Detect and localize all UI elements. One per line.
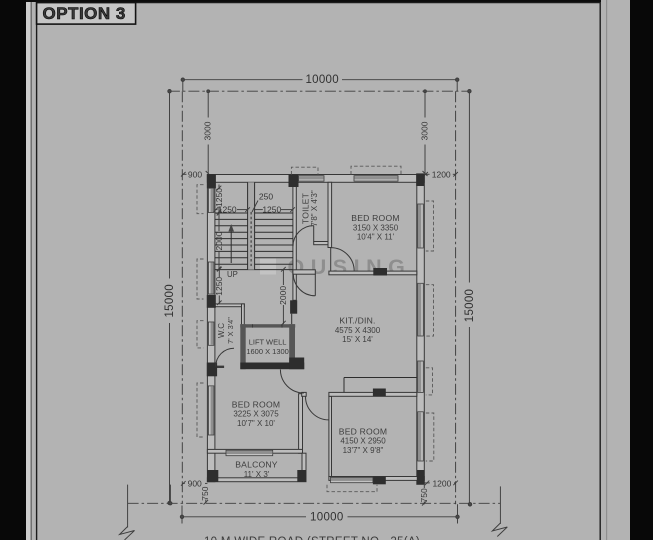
svg-text:TOILET: TOILET — [301, 192, 311, 224]
svg-text:BED ROOM: BED ROOM — [351, 213, 399, 223]
svg-text:BALCONY: BALCONY — [235, 460, 278, 470]
svg-text:1250: 1250 — [214, 277, 224, 296]
svg-text:KIT./DIN.: KIT./DIN. — [339, 315, 375, 325]
svg-text:900: 900 — [188, 169, 202, 179]
svg-text:OUSING: OUSING — [288, 255, 412, 279]
svg-text:3000: 3000 — [203, 121, 213, 140]
svg-text:1200: 1200 — [432, 169, 451, 179]
svg-text:2000: 2000 — [214, 231, 224, 250]
svg-text:4150 X 2950: 4150 X 2950 — [340, 437, 386, 446]
svg-text:10'4" X 11': 10'4" X 11' — [357, 233, 395, 242]
svg-text:10000: 10000 — [305, 74, 338, 86]
svg-text:7'8" X 4'3": 7'8" X 4'3" — [310, 190, 319, 226]
svg-text:2000: 2000 — [278, 286, 288, 305]
svg-text:LIFT WELL: LIFT WELL — [249, 338, 287, 347]
svg-text:UP: UP — [227, 270, 238, 279]
svg-text:10 M WIDE ROAD (STREET NO - 25: 10 M WIDE ROAD (STREET NO - 25(A) — [204, 536, 420, 540]
svg-text:3225 X 3075: 3225 X 3075 — [233, 410, 279, 419]
svg-text:4575 X 4300: 4575 X 4300 — [335, 326, 381, 335]
svg-text:3000: 3000 — [419, 121, 429, 140]
svg-text:11' X 3': 11' X 3' — [244, 470, 270, 479]
svg-text:1600 X 1300: 1600 X 1300 — [246, 347, 289, 356]
svg-text:OPTION 3: OPTION 3 — [43, 4, 126, 23]
svg-text:10'7" X 10': 10'7" X 10' — [237, 419, 275, 428]
svg-text:BED ROOM: BED ROOM — [232, 399, 280, 409]
svg-text:15000: 15000 — [464, 289, 476, 322]
svg-text:13'7" X 9'8": 13'7" X 9'8" — [343, 446, 384, 455]
svg-text:1250: 1250 — [262, 204, 281, 214]
svg-text:1200: 1200 — [432, 478, 451, 488]
svg-text:15000: 15000 — [164, 284, 176, 317]
svg-text:750: 750 — [419, 488, 429, 502]
svg-text:3150 X 3350: 3150 X 3350 — [353, 224, 399, 233]
svg-text:250: 250 — [259, 191, 273, 201]
svg-text:W.C: W.C — [217, 323, 226, 338]
svg-text:10000: 10000 — [310, 512, 343, 524]
svg-text:1250: 1250 — [218, 204, 237, 214]
svg-text:750: 750 — [200, 486, 210, 500]
svg-text:BED ROOM: BED ROOM — [339, 426, 387, 436]
svg-text:15' X 14': 15' X 14' — [342, 335, 373, 344]
svg-text:7' X 3'4": 7' X 3'4" — [226, 317, 235, 344]
